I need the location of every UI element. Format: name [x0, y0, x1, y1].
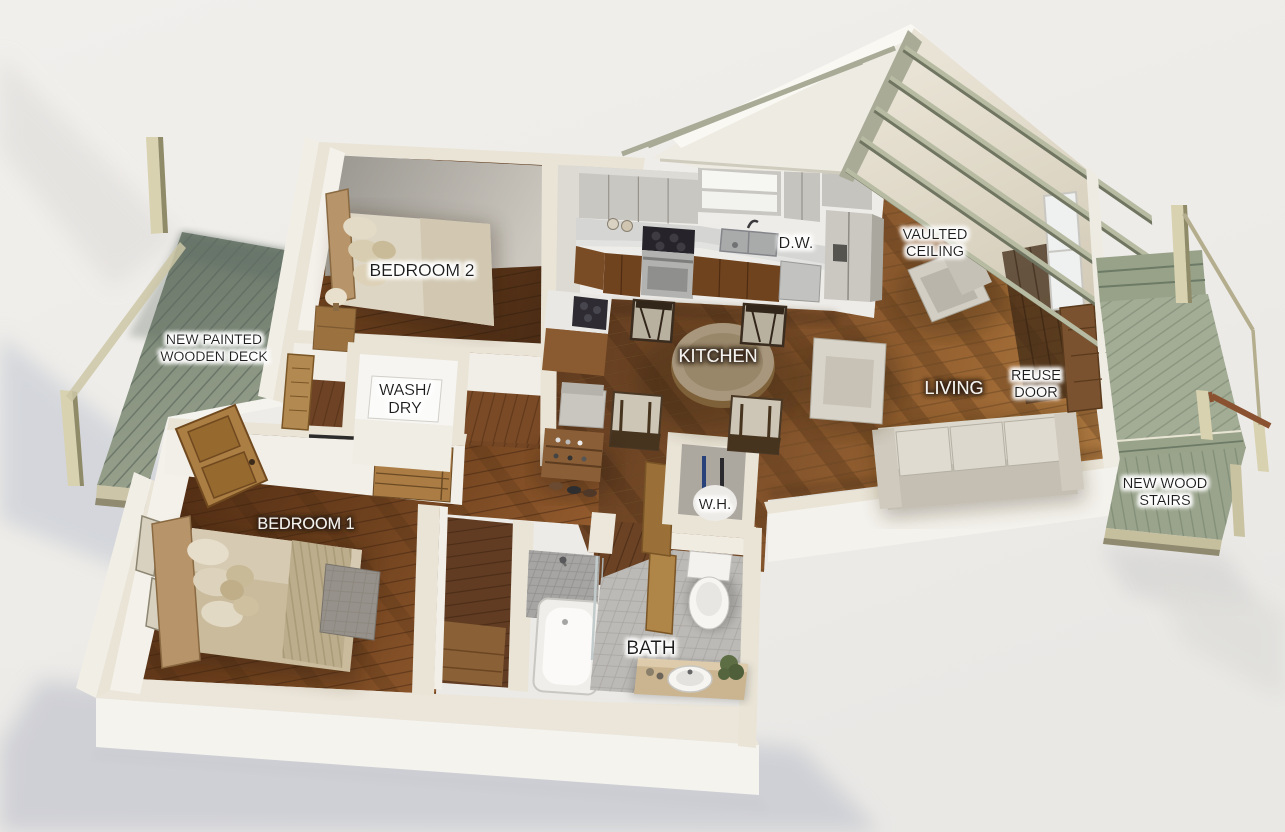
svg-text:W.H.: W.H.: [699, 496, 732, 513]
svg-text:DRY: DRY: [388, 400, 422, 417]
svg-text:BEDROOM 2: BEDROOM 2: [369, 260, 474, 280]
svg-text:WASH/: WASH/: [379, 382, 431, 399]
svg-text:DOOR: DOOR: [1014, 385, 1058, 401]
svg-text:VAULTED: VAULTED: [903, 227, 968, 243]
svg-text:REUSE: REUSE: [1011, 368, 1061, 384]
svg-text:CEILING: CEILING: [906, 244, 964, 260]
svg-text:D.W.: D.W.: [779, 235, 814, 252]
svg-text:LIVING: LIVING: [924, 378, 983, 398]
svg-text:NEW PAINTED: NEW PAINTED: [166, 331, 262, 347]
svg-text:KITCHEN: KITCHEN: [678, 346, 757, 366]
svg-text:STAIRS: STAIRS: [1139, 493, 1190, 509]
svg-text:WOODEN DECK: WOODEN DECK: [160, 348, 268, 364]
svg-text:BEDROOM 1: BEDROOM 1: [257, 515, 354, 533]
svg-text:NEW WOOD: NEW WOOD: [1123, 476, 1208, 492]
svg-text:BATH: BATH: [626, 638, 675, 659]
